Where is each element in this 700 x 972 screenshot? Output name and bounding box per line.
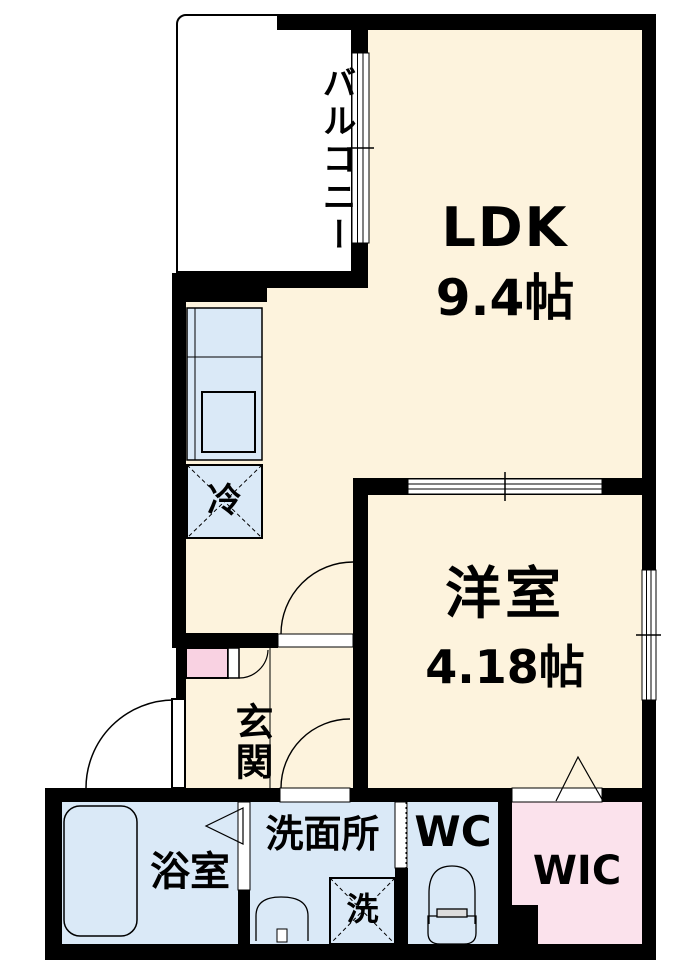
washing-machine-label: 洗 — [330, 893, 395, 927]
bathtub — [64, 806, 137, 936]
washbasin — [256, 897, 308, 942]
wic-label: WIC — [512, 850, 642, 892]
bathroom-label: 浴室 — [140, 851, 240, 893]
door-arc-hall-washroom — [281, 719, 350, 788]
shoe-cabinet — [186, 648, 228, 678]
western-room-size-label: 4.18帖 — [368, 643, 642, 691]
window-western-top — [408, 472, 602, 501]
wc-door-opening — [395, 802, 407, 868]
shoe-cabinet-door-leaf — [228, 648, 239, 678]
entrance-door-arc — [86, 700, 174, 788]
doorway-hall-ldk — [278, 634, 353, 647]
western-room-label: 洋室 — [368, 566, 642, 625]
toilet — [428, 866, 476, 944]
bath-folding-door — [206, 808, 243, 844]
floorplan: バルコニー LDK 9.4帖 洋室 4.18帖 冷 玄関 浴室 洗面所 洗 WC… — [0, 0, 700, 972]
entrance-door-leaf — [172, 699, 185, 788]
shoe-cabinet-door-arc — [239, 650, 268, 678]
balcony-label: バルコニー — [176, 52, 353, 267]
ldk-size-label: 9.4帖 — [368, 272, 642, 325]
refrigerator-label: 冷 — [187, 484, 262, 520]
doorway-hall-washroom — [280, 788, 350, 802]
kitchen-counter — [187, 308, 262, 460]
ldk-label: LDK — [368, 200, 642, 257]
door-arc-hall-ldk — [281, 562, 353, 634]
washroom-label: 洗面所 — [250, 815, 395, 855]
entrance-label: 玄関 — [186, 696, 270, 788]
wc-label: WC — [408, 810, 498, 854]
